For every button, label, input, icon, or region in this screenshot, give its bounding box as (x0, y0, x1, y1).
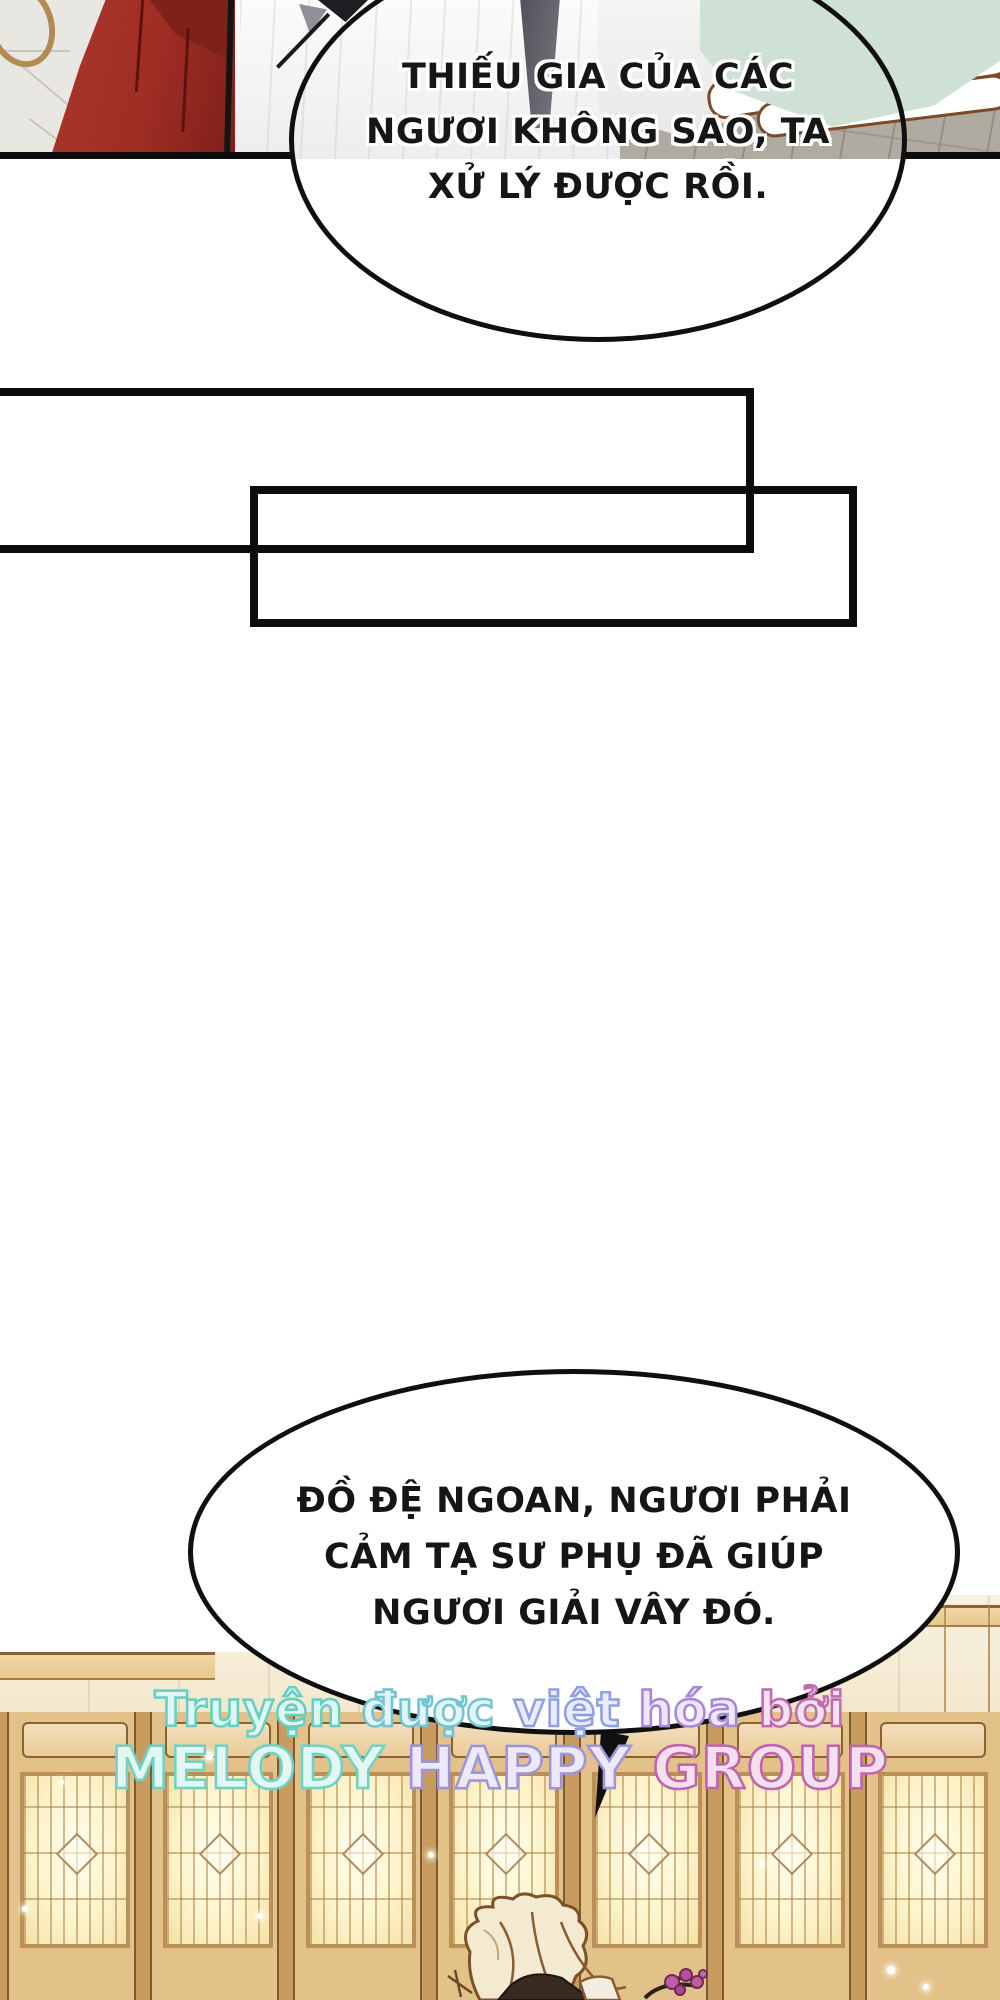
speech-line: XỬ LÝ ĐƯỢC RỒI. (289, 160, 907, 215)
watermark-word: hóa (638, 1682, 741, 1738)
character-figure (440, 1890, 720, 2000)
brush-sticks (448, 1970, 472, 1997)
door-frame-column (0, 1712, 9, 2000)
sparkle (428, 1852, 434, 1858)
flower-ornament (665, 1969, 707, 1995)
watermark-word: việt (513, 1682, 620, 1738)
collar (580, 1977, 620, 2000)
watermark-line-2: MELODY HAPPY GROUP (60, 1734, 940, 1802)
speech-text-bottom: ĐỒ ĐỆ NGOAN, NGƯƠI PHẢI CẢM TẠ SƯ PHỤ ĐÃ… (188, 1473, 960, 1641)
watermark-line-1: Truyện được việt hóa bởi (60, 1682, 940, 1738)
sparkle (760, 1862, 764, 1866)
watermark-word: MELODY (111, 1734, 384, 1802)
watermark-word: Truyện (155, 1682, 344, 1738)
speech-line: THIẾU GIA CỦA CÁC (289, 50, 907, 105)
speech-text-top: THIẾU GIA CỦA CÁC NGƯƠI KHÔNG SAO, TA XỬ… (289, 50, 907, 215)
watermark-word: được (362, 1682, 496, 1738)
watermark-word: bởi (759, 1682, 846, 1738)
panel-border-right (903, 152, 1000, 159)
sparkle (887, 1966, 895, 1974)
speech-line: CẢM TẠ SƯ PHỤ ĐÃ GIÚP (188, 1529, 960, 1585)
watermark-word: GROUP (653, 1734, 889, 1802)
sparkle (923, 1984, 929, 1990)
empty-panel-frame-2 (250, 486, 857, 627)
door-header-beam-left (0, 1652, 215, 1680)
sparkle (257, 1913, 263, 1919)
speech-line: ĐỒ ĐỆ NGOAN, NGƯƠI PHẢI (188, 1473, 960, 1529)
speech-line: NGƯƠI GIẢI VÂY ĐÓ. (188, 1585, 960, 1641)
speech-line: NGƯƠI KHÔNG SAO, TA (289, 105, 907, 160)
panel-border-left (0, 152, 294, 159)
watermark-word: HAPPY (406, 1734, 631, 1802)
comic-page: THIẾU GIA CỦA CÁC NGƯƠI KHÔNG SAO, TA XỬ… (0, 0, 1000, 2000)
sparkle (22, 1906, 28, 1912)
